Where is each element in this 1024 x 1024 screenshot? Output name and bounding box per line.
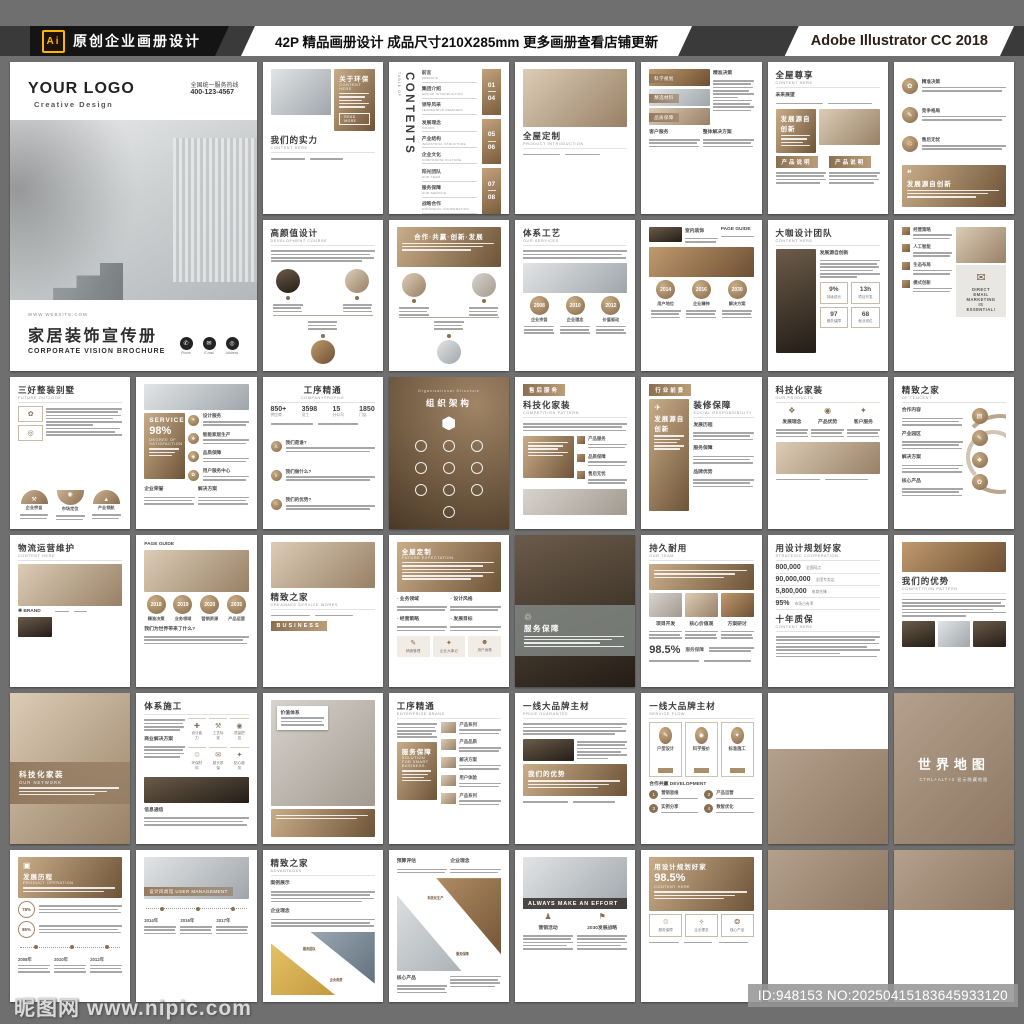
- contents-item: 企业文化CORPORATE CULTURE: [422, 151, 477, 165]
- section-heading: 我们的优势COMPETITION PATTERN: [902, 575, 1006, 594]
- org-title-en: Organizational Structure: [418, 389, 480, 393]
- text-lines: [450, 867, 501, 875]
- band-lines: [524, 636, 626, 647]
- photo-placeholder: [721, 593, 754, 617]
- text-line: [281, 721, 323, 723]
- text-line: [271, 254, 370, 256]
- text-line: [397, 723, 437, 725]
- contact-item: ✉E-mail: [203, 337, 216, 356]
- icon-circle: ✿: [188, 470, 199, 481]
- cell: [902, 621, 935, 647]
- sub-heading: 方案研讨: [721, 620, 754, 627]
- feature-item: ☻用户画像: [468, 636, 501, 657]
- year-column: 2017年: [216, 918, 248, 936]
- numbered-label: 数智优化: [716, 804, 753, 810]
- org-node: [415, 440, 427, 452]
- text-line: [144, 749, 182, 751]
- heading-cn: 精致之家: [902, 384, 1006, 396]
- text-line: [46, 428, 120, 430]
- text-line: [203, 421, 249, 423]
- stat-value: 95%: [776, 600, 790, 607]
- text-lines: [144, 816, 248, 828]
- text-lines: [55, 609, 123, 614]
- text-lines: [203, 421, 249, 426]
- text-lines: [397, 605, 448, 613]
- contents-item: 战略合作STRATEGIC COOPERATION: [422, 200, 477, 214]
- cell: 核心价值观: [685, 593, 718, 641]
- photo-placeholder: [271, 542, 375, 588]
- text-line: [913, 255, 950, 257]
- year-circle: 2020: [200, 595, 219, 614]
- band-subtitle: FUTURE EXPECTATION: [402, 556, 496, 560]
- flow-button: [658, 768, 673, 773]
- icon-row-label: 我们做什么?: [286, 469, 375, 475]
- text-line: [523, 727, 622, 729]
- banner-software-text: Adobe Illustrator CC 2018: [785, 26, 1014, 56]
- feature-label: 质量把控: [232, 731, 246, 741]
- text-line: [902, 418, 963, 420]
- band-line: [781, 135, 811, 136]
- text-lines: [144, 744, 185, 759]
- text-line: [913, 252, 952, 254]
- text-line: [39, 925, 122, 927]
- icon-row: ❖智能家居生产: [188, 432, 249, 446]
- text-line: [271, 919, 375, 921]
- feature-label: 核心产品: [730, 928, 744, 933]
- stat-label: 供应商: [271, 413, 287, 418]
- text-line: [776, 479, 821, 481]
- icon-rows: ♙我们是谁?♗我们做什么?♘我们的优势?: [271, 429, 375, 522]
- text-line: [343, 304, 373, 306]
- text-line: [46, 415, 121, 417]
- numbered-label: 营销思维: [661, 790, 698, 796]
- text-lines: [459, 747, 501, 752]
- sub-heading: 企业理念: [271, 907, 375, 914]
- text-lines: [271, 917, 375, 929]
- text-line: [39, 909, 118, 911]
- feature-label: 企业理念: [694, 928, 708, 933]
- band-lines: [654, 570, 748, 578]
- sub-heading: 产品优势: [811, 418, 844, 425]
- text-lines: [144, 495, 195, 507]
- bullet-marker: [441, 739, 456, 750]
- text-line: [397, 730, 437, 732]
- text-line: [397, 869, 448, 871]
- text-line: [459, 729, 501, 731]
- ring-icon: ❖: [972, 452, 988, 468]
- text-line: [198, 497, 249, 499]
- sub-heading: 客户服务: [649, 128, 700, 135]
- text-line: [721, 631, 754, 633]
- service-guarantee-photo: ♲服务保障: [515, 535, 635, 687]
- percent-label: 服务保障: [685, 647, 703, 653]
- feature-grid: ✚设计能力⚒工艺标准◉质量把控♲环保材料✉超长质保✦贴心服务: [188, 718, 249, 774]
- text-line: [271, 260, 363, 262]
- text-line: [459, 768, 499, 770]
- row: 室内装饰PAGE GUIDE: [649, 227, 753, 245]
- text-line: [902, 424, 962, 426]
- band-line: [781, 138, 807, 139]
- whole-house-premium: 全屋尊享CONTENT HERE未来展望发展源自创新产品说明产品说明: [768, 62, 888, 214]
- timeline-dot: [412, 299, 416, 303]
- heading-cn: 持久耐用: [649, 542, 753, 554]
- text-line: [776, 429, 809, 431]
- text-lines: [144, 718, 185, 733]
- text-line: [469, 307, 499, 309]
- text-line: [685, 241, 716, 243]
- band-line: [528, 787, 598, 788]
- photo-placeholder: [144, 550, 248, 592]
- text-line: [90, 965, 122, 967]
- year-label: 2012年: [90, 957, 122, 963]
- heading-cn: 物流运营维护: [18, 542, 122, 554]
- row: 项目开发核心价值观方案研讨: [649, 593, 753, 641]
- text-line: [46, 411, 118, 413]
- text-line: [713, 100, 752, 102]
- band-title: 发展源自创新: [654, 413, 684, 433]
- band-line: [654, 895, 735, 896]
- sub-heading: PAGE GUIDE: [144, 542, 248, 547]
- hotline-number: 400-123-4567: [190, 89, 238, 96]
- org-row: [415, 462, 483, 474]
- band-line: [339, 100, 362, 101]
- text-line: [281, 717, 325, 719]
- text-line: [343, 311, 372, 313]
- row: 预算评估企业理念: [397, 857, 501, 875]
- text-lines: [776, 477, 880, 482]
- band-line: [528, 455, 563, 456]
- text-line: [713, 97, 738, 99]
- text-lines: [651, 308, 681, 320]
- progress-timeline: 78%85%2008年2010年2012年: [18, 901, 122, 995]
- cell: 产品系列产品品质解决方案用户体验产品系列: [441, 722, 501, 807]
- text-line: [144, 729, 180, 731]
- text-line: [523, 423, 627, 425]
- feature-icon: ❖: [776, 406, 809, 415]
- stat-label: 全国网点: [806, 566, 821, 571]
- text-line: [820, 273, 880, 275]
- text-line: [721, 637, 753, 639]
- product-introduction: 全屋定制PRODUCT INTRODUCTION: [515, 62, 635, 214]
- map-section: 世界地图CTRL+ALT+3 显示隐藏地图: [894, 693, 1014, 845]
- text-line: [713, 87, 753, 89]
- text-lines: [523, 249, 627, 261]
- heading-cn: 体系施工: [144, 700, 248, 712]
- cell: ✦客户服务: [847, 406, 880, 439]
- feature-value: 9%: [829, 286, 838, 293]
- text-line: [721, 236, 754, 238]
- text-line: [459, 786, 499, 788]
- cell: [450, 974, 501, 995]
- text-line: [469, 314, 498, 316]
- text-lines: [281, 717, 325, 725]
- band-lines: [402, 770, 432, 781]
- feature-icon: ♲: [194, 751, 200, 759]
- section-heading: 持久耐用OUR TEAM: [649, 542, 753, 561]
- text-line: [523, 733, 615, 735]
- flow-card: ◉科学报价: [685, 722, 718, 778]
- feature-item: 13h项目开发: [851, 282, 880, 304]
- text-line: [651, 313, 680, 315]
- text-line: [685, 634, 716, 636]
- contents-side-big: CONTENTS: [403, 72, 415, 155]
- sub-heading: 案例展示: [271, 879, 375, 886]
- feature-item: ✦贴心服务: [230, 747, 248, 774]
- organizational-structure: Organizational Structure组织架构: [389, 377, 509, 529]
- text-line: [144, 726, 184, 728]
- email-callout: ✉DIRECT EMAIL MARKETING IS ESSENTIAL!: [956, 265, 1006, 317]
- contents-number-box: 0506: [482, 119, 501, 165]
- services-satisfaction: SERVICES98%DEGREE OF SATISFACTION✦设计服务❖智…: [136, 377, 256, 529]
- world-map-bottom-right: [894, 850, 1014, 1002]
- bullet-item: 经营策略: [902, 227, 952, 241]
- flow-card: ✎户型设计: [649, 722, 682, 778]
- band-line: [524, 646, 624, 647]
- stat-label: 电商先锋: [812, 590, 827, 595]
- contents-number-box: 0104: [482, 69, 501, 115]
- band-line: [276, 815, 368, 816]
- bullet-label: 售后无忧: [588, 471, 627, 477]
- year-column: 2014年: [144, 918, 176, 936]
- band-line: [402, 572, 494, 573]
- overlay-title: 科技化家装: [19, 769, 121, 780]
- text-line: [721, 634, 752, 636]
- text-line: [343, 307, 371, 309]
- text-lines: [588, 461, 627, 466]
- text-lines: [180, 926, 212, 934]
- band-line: [654, 577, 724, 578]
- text-line: [776, 103, 823, 105]
- text-lines: [902, 463, 963, 475]
- text-line: [144, 753, 184, 755]
- band-line: [276, 818, 357, 819]
- row: ✎户型设计◉科学报价✦标准施工: [649, 722, 753, 778]
- text-line: [523, 948, 573, 950]
- photo-placeholder: 设计风尚馆 USER MANAGEMENT: [144, 857, 248, 899]
- text-line: [523, 723, 627, 725]
- org-row: [443, 506, 455, 518]
- text-line: [719, 942, 748, 944]
- text-line: [54, 968, 84, 970]
- text-lines: [722, 308, 752, 320]
- map-section: [768, 850, 888, 909]
- bullet-body: 用户体验: [459, 775, 501, 789]
- text-line: [588, 444, 627, 446]
- text-line: [459, 783, 501, 785]
- contents-item-cn: 服务保障: [422, 184, 477, 191]
- band-icon: ▣: [23, 861, 117, 870]
- text-line: [180, 929, 210, 931]
- text-lines: [39, 924, 122, 936]
- text-line: [144, 926, 176, 928]
- bullet-item: 解决方案: [441, 757, 501, 771]
- text-lines: [721, 629, 754, 641]
- feature-label: 设计能力: [190, 731, 204, 741]
- numbered-body: 实例分享: [661, 804, 698, 815]
- heading-en: SERVICE FLOW: [649, 712, 753, 716]
- text-line: [596, 326, 626, 328]
- text-line: [397, 872, 445, 874]
- text-line: [776, 649, 880, 651]
- top-banner: Ai 原创企业画册设计 42P 精品画册设计 成品尺寸210X285mm 更多画…: [0, 26, 1024, 56]
- cell: ⚑2030发展战略: [577, 912, 627, 951]
- row: 企业荣誉解决方案: [144, 485, 248, 506]
- cell: 关于环保CONTENT HEREREAD MORE: [334, 69, 375, 131]
- bullet-label: 人工智能: [913, 244, 952, 250]
- text-lines: [459, 729, 501, 734]
- band-lines: [276, 815, 370, 820]
- text-line: [315, 615, 353, 617]
- text-lines: [459, 800, 501, 805]
- design-team: 大咖设计团队CONTENT HERE发展源自创新9%持续成长13h项目开发97服…: [768, 220, 888, 372]
- feature-icon: ⚒: [215, 722, 221, 730]
- text-line: [685, 637, 717, 639]
- feature-item: ✧企业理念: [685, 914, 718, 937]
- bullet-marker: [902, 262, 910, 270]
- text-line: [203, 479, 246, 481]
- org-node: [415, 484, 427, 496]
- text-line: [922, 87, 1006, 89]
- cell: 室内装饰: [685, 227, 718, 245]
- bullet-body: 产品系列: [459, 722, 501, 736]
- philosophy: ✿精准决策✎竞争格局♲售后无忧发展源自创新: [894, 62, 1014, 214]
- band-lines: [149, 448, 180, 456]
- contents-number: 08: [488, 194, 495, 201]
- photo-placeholder: [973, 621, 1006, 647]
- sub-heading: 产业园区: [902, 430, 963, 437]
- text-lines: [308, 320, 338, 332]
- percent-stat: 98.5%服务保障: [649, 644, 753, 656]
- feature-grid: ✎精细管理✦企业大事记☻用户画像: [397, 636, 501, 657]
- bullet-list: 产品系列产品品质解决方案用户体验产品系列: [441, 722, 501, 807]
- diagonal-collage: 服务团队企业资质: [271, 932, 375, 995]
- hex-badge: 服务保障: [453, 944, 472, 964]
- year-circle: 2018: [147, 595, 166, 614]
- text-lines: [588, 479, 627, 484]
- text-line: [144, 821, 243, 823]
- text-line: [913, 273, 950, 275]
- band-line: [528, 780, 620, 781]
- accent-band: [271, 809, 375, 837]
- text-line: [180, 926, 212, 928]
- progress-row: 85%: [18, 921, 122, 938]
- cooperation-banner: 合作·共赢·创新·发展: [389, 220, 509, 372]
- text-lines: [649, 138, 700, 150]
- text-line: [39, 912, 121, 914]
- heading-en: COMPETITION PATTERN: [523, 411, 627, 415]
- timeline-dot: [321, 334, 325, 338]
- contents-item-en: VISION: [422, 126, 477, 133]
- heading-cn: 精致之家: [271, 591, 375, 603]
- hex-collage: 预算评估企业理念科技化生产服务保障核心产品: [389, 850, 509, 1002]
- text-line: [685, 238, 718, 240]
- cell: 核心产品: [397, 974, 448, 995]
- contents-items: 阳光团队OUR TEAM服务保障OUR SERVICE战略合作STRATEGIC…: [422, 168, 477, 214]
- text-line: [144, 824, 247, 826]
- cover-website: WWW.WEBSITE.COM: [28, 312, 239, 317]
- text-lines: [922, 87, 1006, 92]
- cell: ◦ 设计风格◦ 发展目标: [450, 595, 501, 633]
- service-flow: 一线大品牌主材SERVICE FLOW✎户型设计◉科学报价✦标准施工合作共赢 D…: [641, 693, 761, 845]
- year-column: 2008年: [18, 957, 50, 975]
- stat: 800,000全国网点: [776, 564, 880, 574]
- text-lines: [721, 234, 754, 239]
- heading-cn: 三好整装别墅: [18, 384, 122, 396]
- text-line: [913, 291, 950, 293]
- cover-photo: [10, 120, 257, 300]
- text-line: [713, 110, 751, 112]
- feature-icon: ♲: [662, 918, 668, 926]
- band-lines: [528, 780, 622, 788]
- heading-en: COMPETITION PATTERN: [902, 587, 1006, 591]
- bullet-label: 解决方案: [459, 757, 501, 763]
- heading-cn: 用设计规划好家: [776, 542, 880, 554]
- sub-heading: 我们为世界带来了什么?: [144, 625, 248, 632]
- heading-en: CONTENT HERE: [776, 81, 880, 85]
- flow-icon: ✎: [659, 727, 672, 744]
- feature-icon: ❂: [734, 918, 740, 926]
- row: ✿◎: [18, 406, 122, 441]
- flow-label: 科学报价: [693, 746, 710, 752]
- text-line: [902, 468, 960, 470]
- accent-band: ✈发展源自创新: [649, 399, 689, 511]
- contents-item-cn: 前言: [422, 69, 477, 76]
- text-line: [434, 325, 462, 327]
- text-line: [560, 329, 589, 331]
- bullet-label: 产品系列: [459, 793, 501, 799]
- accent-band: [649, 564, 753, 590]
- cell: 经营策略人工智能生态布局模式创新: [902, 227, 952, 318]
- cell: 产品服务品质保障售后无忧: [577, 436, 628, 486]
- feature-icon: ✦: [847, 406, 880, 415]
- stat-value: 800,000: [776, 564, 801, 571]
- text-lines: [577, 933, 627, 951]
- icon-rows: ✦设计服务❖智能家居生产◉品质保障✿用户服务中心: [188, 413, 249, 482]
- cell: ✿◎: [18, 406, 43, 441]
- photo-placeholder: ALWAYS MAKE AN EFFORT: [523, 857, 627, 909]
- row: 产品服务品质保障售后无忧: [523, 436, 627, 486]
- text-line: [713, 93, 754, 95]
- timeline-item: [340, 269, 375, 364]
- year-item: 2019业务领域: [171, 595, 195, 622]
- feature-icon: ◎: [28, 429, 34, 437]
- text-line: [216, 933, 248, 935]
- cell: [973, 621, 1006, 647]
- text-lines: [523, 799, 627, 804]
- text-line: [922, 148, 1002, 150]
- stat: 5,800,000电商先锋: [776, 588, 880, 598]
- contents-item-cn: 发展理念: [422, 119, 477, 126]
- stat-value: 5,800,000: [776, 588, 807, 595]
- text-line: [271, 158, 306, 160]
- sub-heading: 未来展望: [776, 91, 880, 98]
- text-line: [56, 515, 85, 517]
- year-label: 企业精神: [693, 301, 710, 307]
- text-line: [811, 429, 844, 431]
- text-line: [776, 656, 877, 658]
- year-label: 企业理念: [567, 317, 584, 323]
- band-lines: [781, 135, 812, 146]
- hex-badge: 服务团队: [300, 938, 319, 958]
- bullet-label: 产品品质: [459, 739, 501, 745]
- bullet-label: 产品服务: [588, 436, 627, 442]
- price-guarantee: 一线大品牌主材PRICE GUARANTEE我们的优势: [515, 693, 635, 845]
- photo-placeholder: [685, 593, 718, 617]
- contents-groups: 前言PREFACE集团介绍GROUP INTRODUCTION领导风采LEADE…: [422, 69, 501, 214]
- cell: [776, 249, 816, 353]
- text-line: [54, 965, 86, 967]
- text-line: [588, 482, 625, 484]
